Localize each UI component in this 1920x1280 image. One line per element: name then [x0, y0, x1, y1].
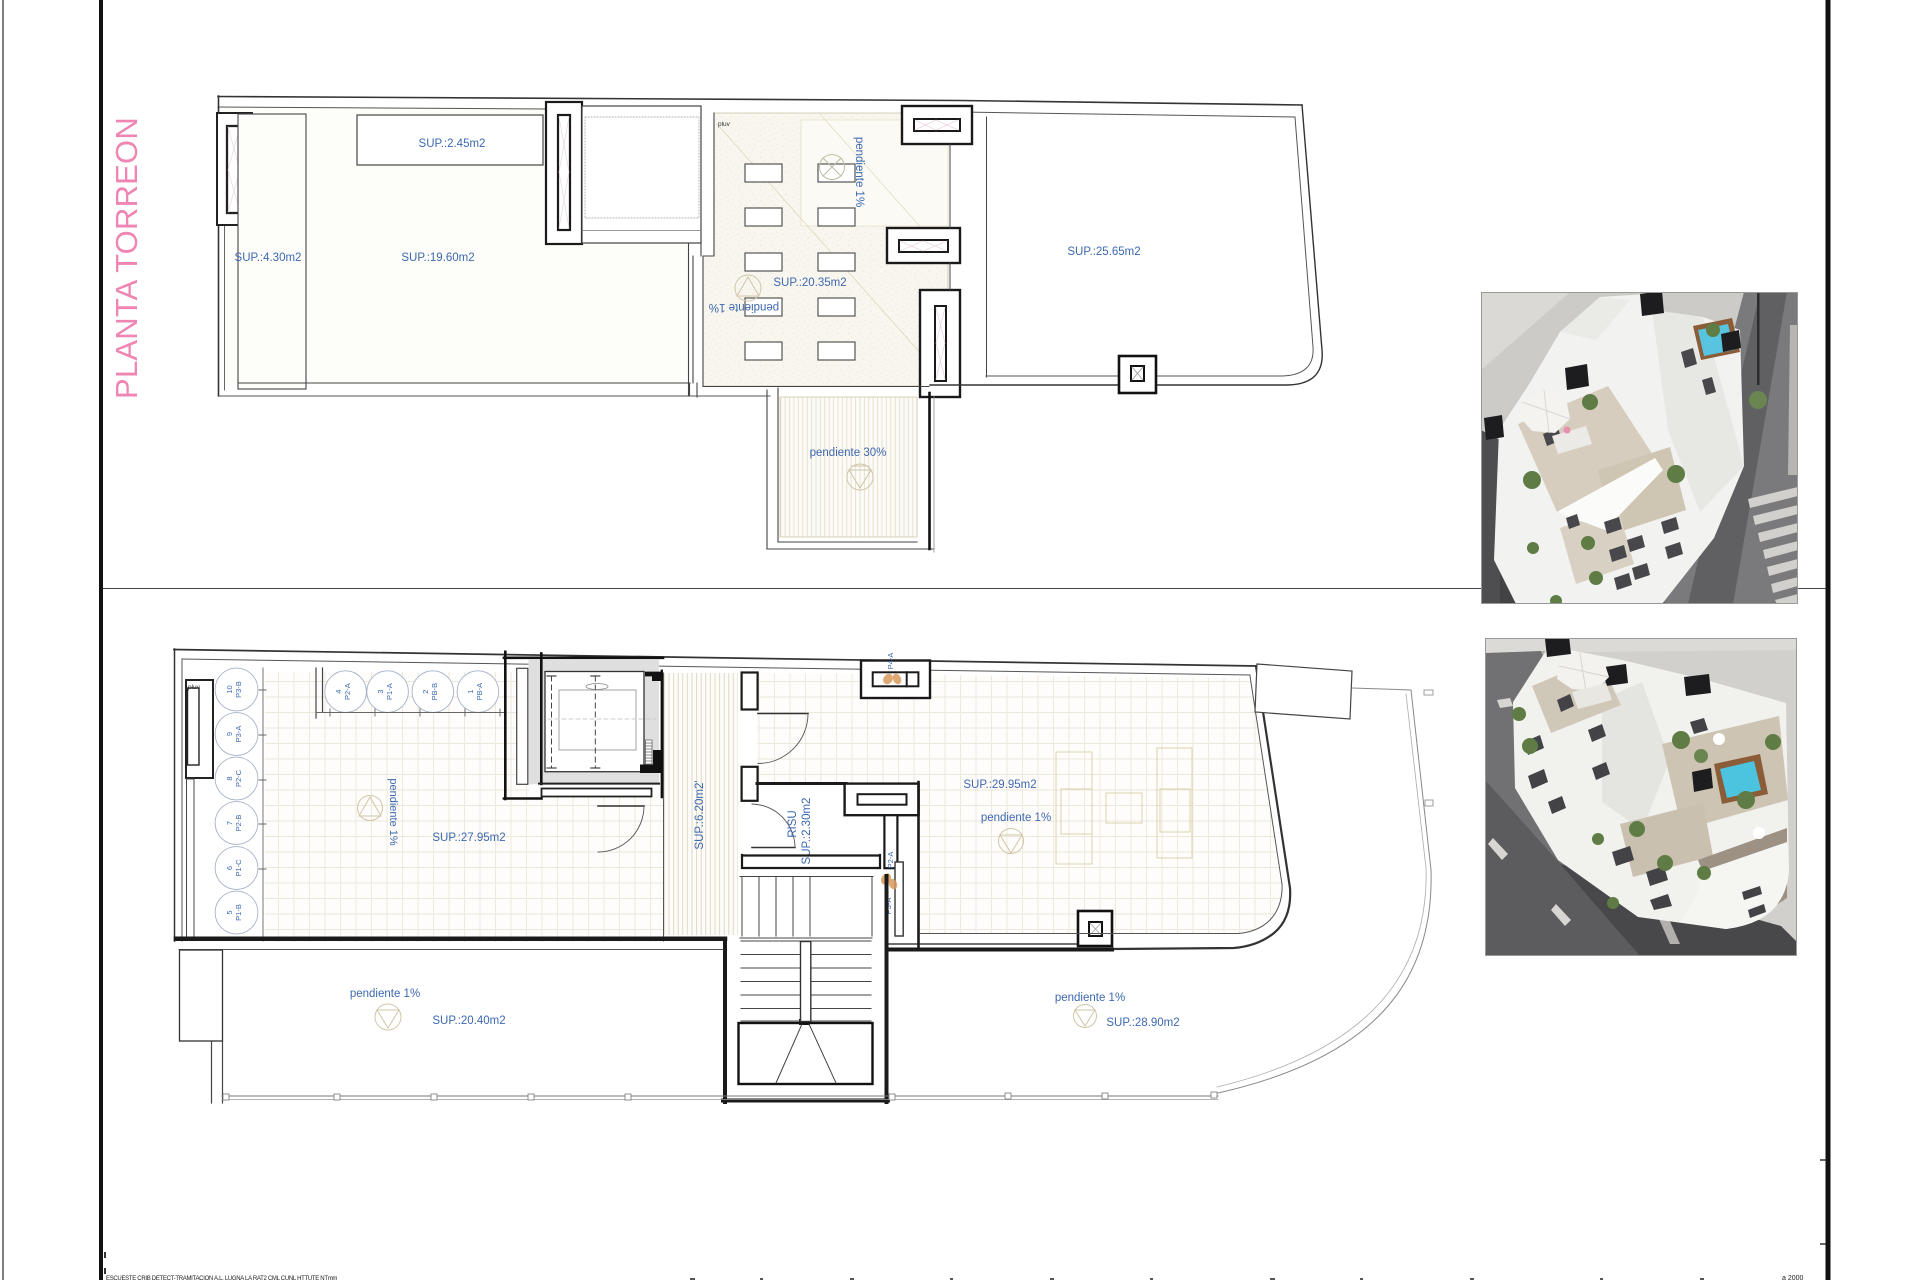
svg-text:SUP.:2.45m2: SUP.:2.45m2: [419, 138, 486, 150]
svg-text:P2-B: P2-B: [234, 815, 243, 832]
svg-text:8: 8: [225, 776, 234, 780]
svg-text:PB-B: PB-B: [430, 683, 439, 701]
svg-text:pendiente 30%: pendiente 30%: [810, 447, 887, 459]
svg-text:P3-B: P3-B: [234, 681, 243, 698]
svg-text:a 2000: a 2000: [1782, 1275, 1804, 1280]
svg-text:SUP.:20.40m2: SUP.:20.40m2: [432, 1015, 505, 1027]
svg-text:pendiente 1%: pendiente 1%: [709, 301, 779, 313]
svg-text:pendiente 1%: pendiente 1%: [387, 778, 399, 845]
svg-text:RISU: RISU: [787, 810, 799, 837]
svg-text:pluv: pluv: [718, 121, 731, 128]
svg-text:5: 5: [225, 910, 234, 914]
svg-text:2: 2: [421, 690, 430, 694]
svg-text:PB-A: PB-A: [475, 683, 484, 701]
svg-text:SUP.:25.65m2: SUP.:25.65m2: [1067, 246, 1140, 258]
svg-text:SUP.:29.95m2: SUP.:29.95m2: [963, 779, 1036, 791]
svg-text:6: 6: [225, 866, 234, 870]
svg-text:SUP.:4.30m2: SUP.:4.30m2: [235, 252, 302, 264]
svg-text:pendiente 1%: pendiente 1%: [853, 137, 865, 207]
svg-text:pendiente 1%: pendiente 1%: [350, 988, 420, 1000]
svg-text:pendiente 1%: pendiente 1%: [1055, 992, 1125, 1004]
svg-text:SUP.:20.35m2: SUP.:20.35m2: [773, 277, 846, 289]
svg-text:P2-C: P2-C: [234, 769, 243, 787]
svg-text:10: 10: [225, 685, 234, 693]
svg-text:P1-A: P1-A: [385, 683, 394, 700]
svg-text:SUP.:6.20m2': SUP.:6.20m2': [694, 780, 706, 849]
svg-text:1: 1: [466, 690, 475, 694]
svg-text:ESCUESTE CRIB DETECT-TRAMITACI: ESCUESTE CRIB DETECT-TRAMITACION A.L. LU…: [106, 1276, 337, 1280]
svg-text:pendiente 1%: pendiente 1%: [981, 812, 1051, 824]
svg-text:SUP.:19.60m2: SUP.:19.60m2: [401, 252, 474, 264]
svg-text:4: 4: [334, 690, 343, 694]
svg-text:SUP.:28.90m2: SUP.:28.90m2: [1106, 1017, 1179, 1029]
svg-text:SUP.:27.95m2: SUP.:27.95m2: [432, 832, 505, 844]
svg-text:pluv: pluv: [188, 684, 201, 691]
svg-text:P2-A: P2-A: [343, 683, 352, 700]
svg-text:7: 7: [225, 821, 234, 825]
svg-text:P2-A: P2-A: [886, 852, 895, 869]
svg-text:9: 9: [225, 732, 234, 736]
svg-text:P4-A: P4-A: [886, 653, 895, 670]
svg-text:P1-B: P1-B: [234, 904, 243, 921]
svg-text:P3-A: P3-A: [234, 726, 243, 743]
svg-text:PLANTA TORREON: PLANTA TORREON: [109, 117, 144, 399]
svg-text:P1-C: P1-C: [234, 859, 243, 877]
svg-text:3: 3: [376, 690, 385, 694]
